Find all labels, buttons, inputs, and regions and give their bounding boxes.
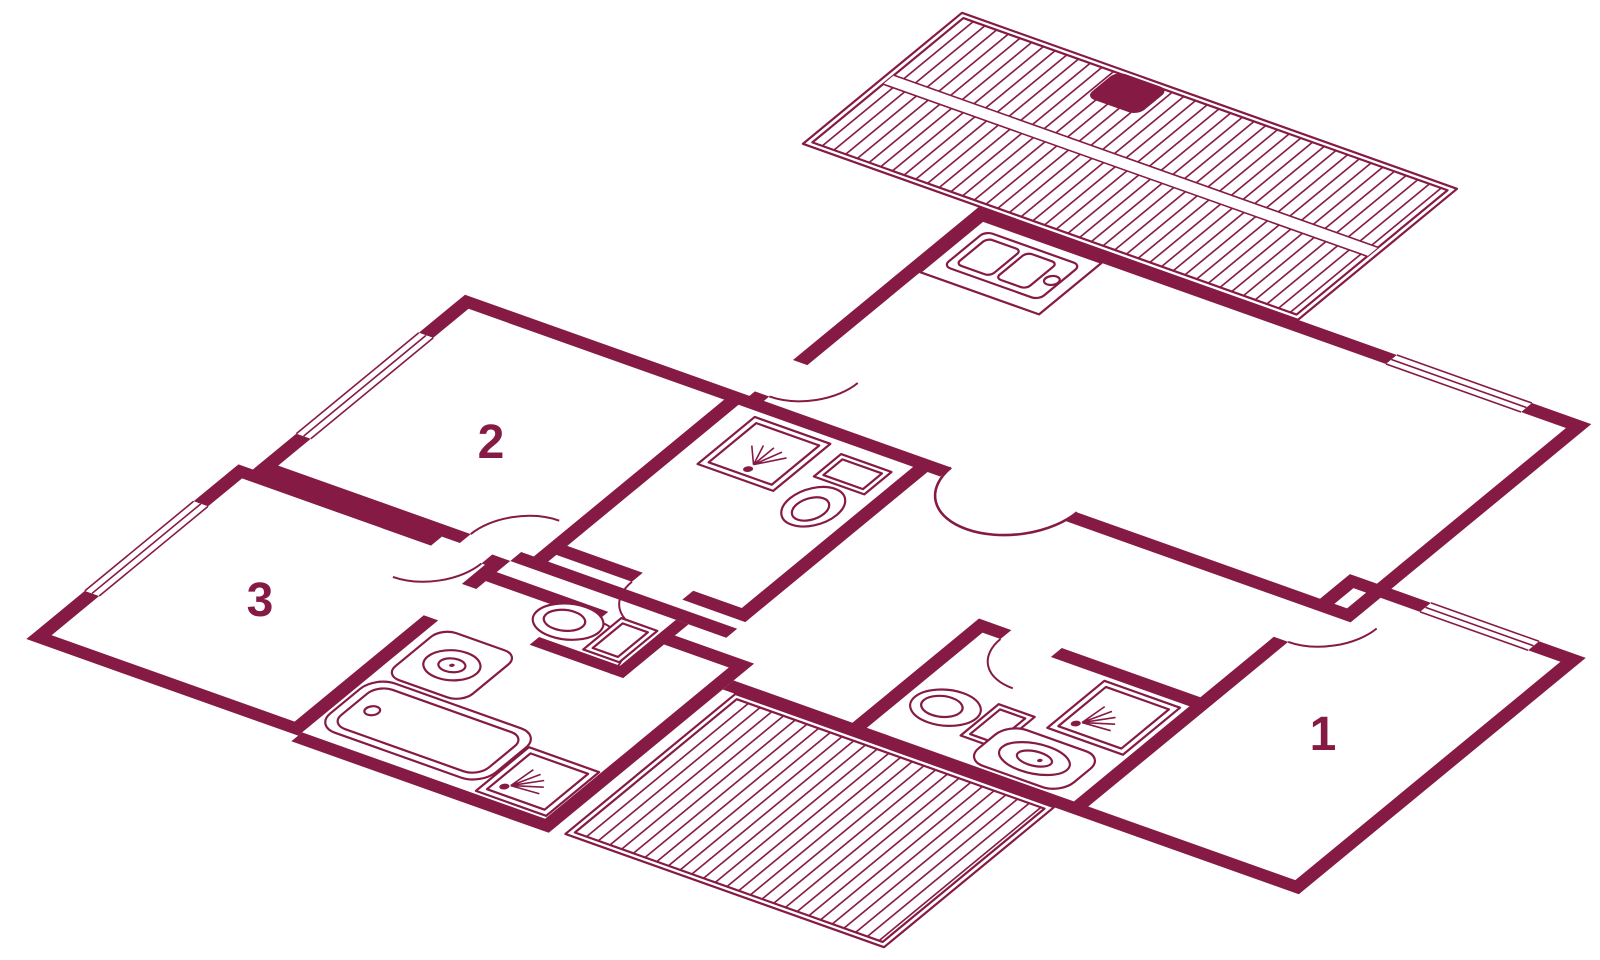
room-1-label: 1	[1310, 708, 1337, 761]
floor-plan-drawing: 1 2 3	[0, 0, 1600, 960]
plan-projection	[20, 0, 1600, 960]
floor-plan-canvas: 1 2 3	[0, 0, 1600, 960]
arched-doorway	[903, 468, 1077, 552]
room-2-label: 2	[478, 416, 505, 469]
room-3-label: 3	[247, 574, 274, 627]
